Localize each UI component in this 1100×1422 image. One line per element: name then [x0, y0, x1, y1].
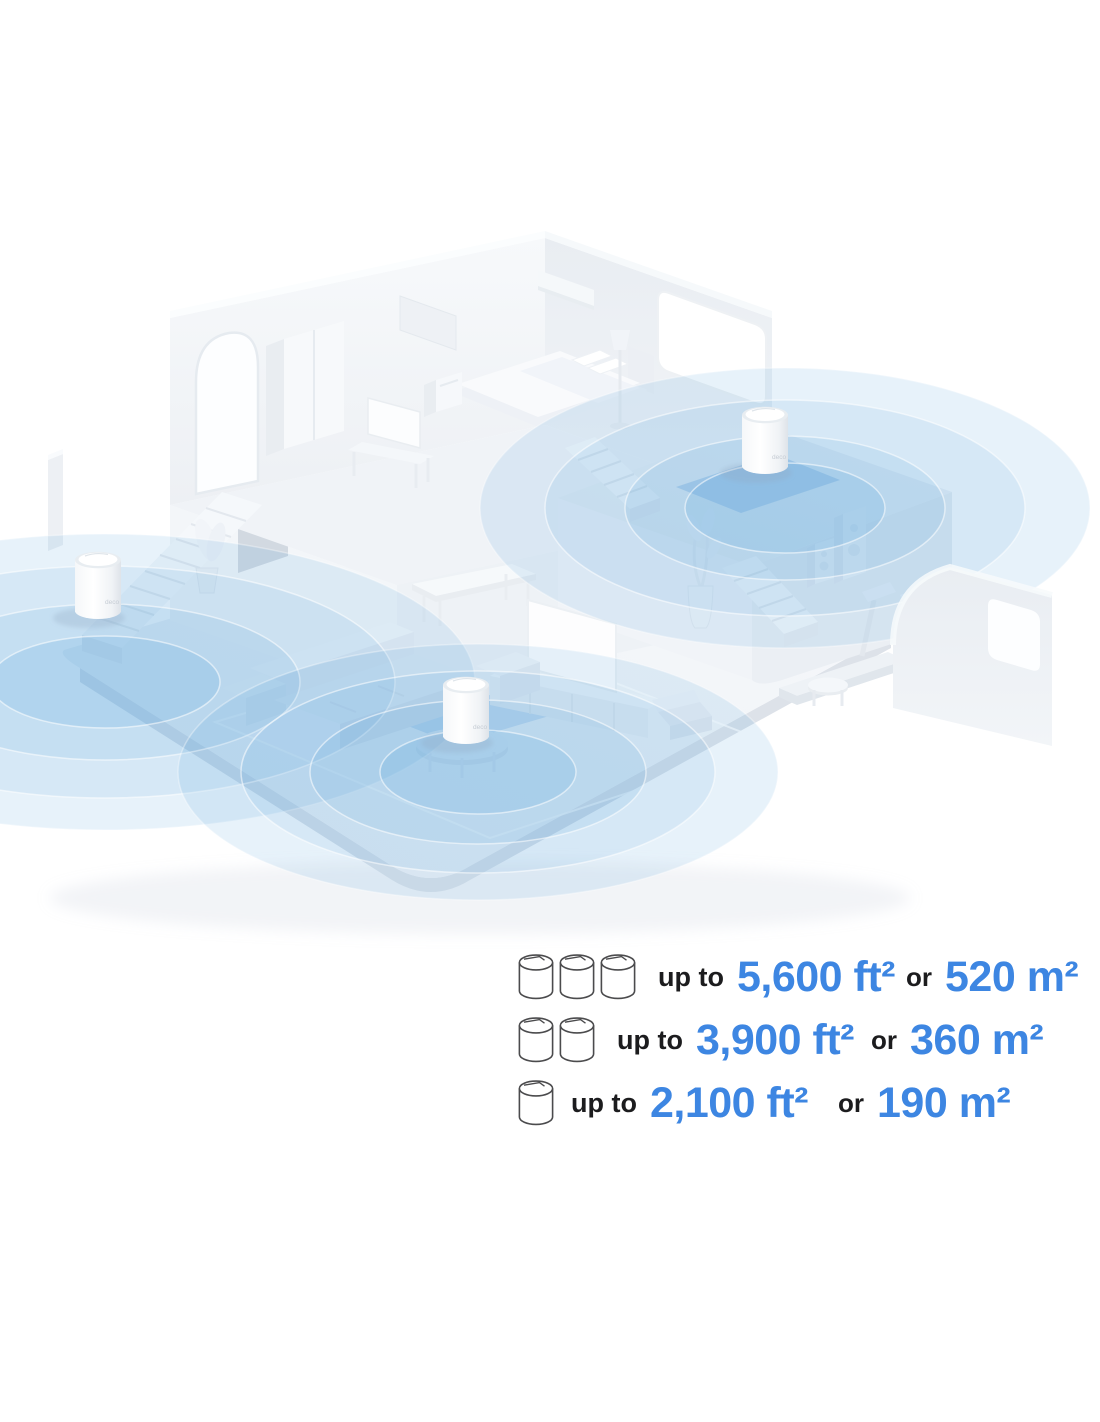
- deco-unit-icon: [518, 1017, 554, 1064]
- deco-unit-icon: [600, 954, 636, 1001]
- deco-unit-icon: [559, 954, 595, 1001]
- coverage-ft-value: 5,600 ft²: [737, 953, 895, 1002]
- conjunction-label: or: [906, 962, 932, 993]
- coverage-ft-value: 3,900 ft²: [696, 1016, 854, 1065]
- arch-doorway: [196, 333, 258, 494]
- prefix-label: up to: [617, 1025, 683, 1056]
- unit-count-icons: [518, 1080, 559, 1127]
- prefix-label: up to: [658, 962, 724, 993]
- page: deco: [0, 0, 1100, 1422]
- coverage-m-value: 190 m²: [877, 1079, 1010, 1128]
- coverage-row-1-pack: up to 2,100 ft² or 190 m²: [518, 1077, 1078, 1129]
- coverage-m-value: 360 m²: [910, 1016, 1043, 1065]
- prefix-label: up to: [571, 1088, 637, 1119]
- coverage-m-value: 520 m²: [945, 953, 1078, 1002]
- house-coverage-illustration: deco: [0, 0, 1100, 950]
- unit-count-icons: [518, 1017, 600, 1064]
- coverage-row-2-pack: up to 3,900 ft² or 360 m²: [518, 1014, 1078, 1066]
- coverage-row-3-pack: up to 5,600 ft² or 520 m²: [518, 951, 1078, 1003]
- unit-count-icons: [518, 954, 641, 1001]
- conjunction-label: or: [871, 1025, 897, 1056]
- deco-unit-icon: [518, 1080, 554, 1127]
- deco-unit-icon: [559, 1017, 595, 1064]
- deco-unit-icon: [518, 954, 554, 1001]
- coverage-summary: up to 5,600 ft² or 520 m² up to 3,900 ft…: [518, 951, 1078, 1140]
- coverage-ft-value: 2,100 ft²: [650, 1079, 808, 1128]
- arch-wall-right: [893, 567, 1052, 746]
- conjunction-label: or: [838, 1088, 864, 1119]
- side-table-round: [808, 678, 848, 707]
